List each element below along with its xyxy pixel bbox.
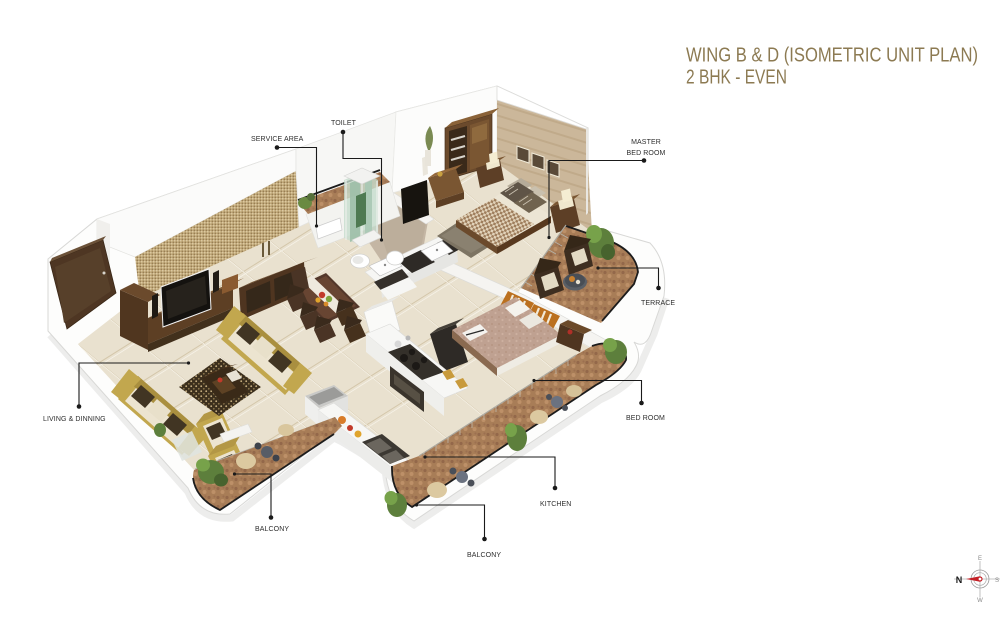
svg-text:2 BHK - EVEN: 2 BHK - EVEN: [686, 66, 787, 89]
svg-text:BALCONY: BALCONY: [255, 526, 289, 533]
svg-text:S: S: [995, 578, 999, 584]
svg-text:TOILET: TOILET: [331, 120, 357, 127]
svg-text:MASTER: MASTER: [631, 139, 661, 146]
svg-text:BED ROOM: BED ROOM: [626, 415, 665, 422]
svg-text:KITCHEN: KITCHEN: [540, 501, 571, 508]
svg-text:SERVICE AREA: SERVICE AREA: [251, 136, 304, 143]
svg-text:W: W: [977, 598, 983, 604]
svg-text:BED ROOM: BED ROOM: [627, 150, 666, 157]
svg-text:N: N: [956, 575, 963, 585]
svg-text:LIVING & DINNING: LIVING & DINNING: [43, 416, 106, 423]
svg-text:WING B & D (ISOMETRIC UNIT PLA: WING B & D (ISOMETRIC UNIT PLAN): [686, 44, 978, 67]
svg-text:BALCONY: BALCONY: [467, 552, 501, 559]
svg-text:E: E: [978, 556, 982, 562]
svg-text:TERRACE: TERRACE: [641, 300, 675, 307]
